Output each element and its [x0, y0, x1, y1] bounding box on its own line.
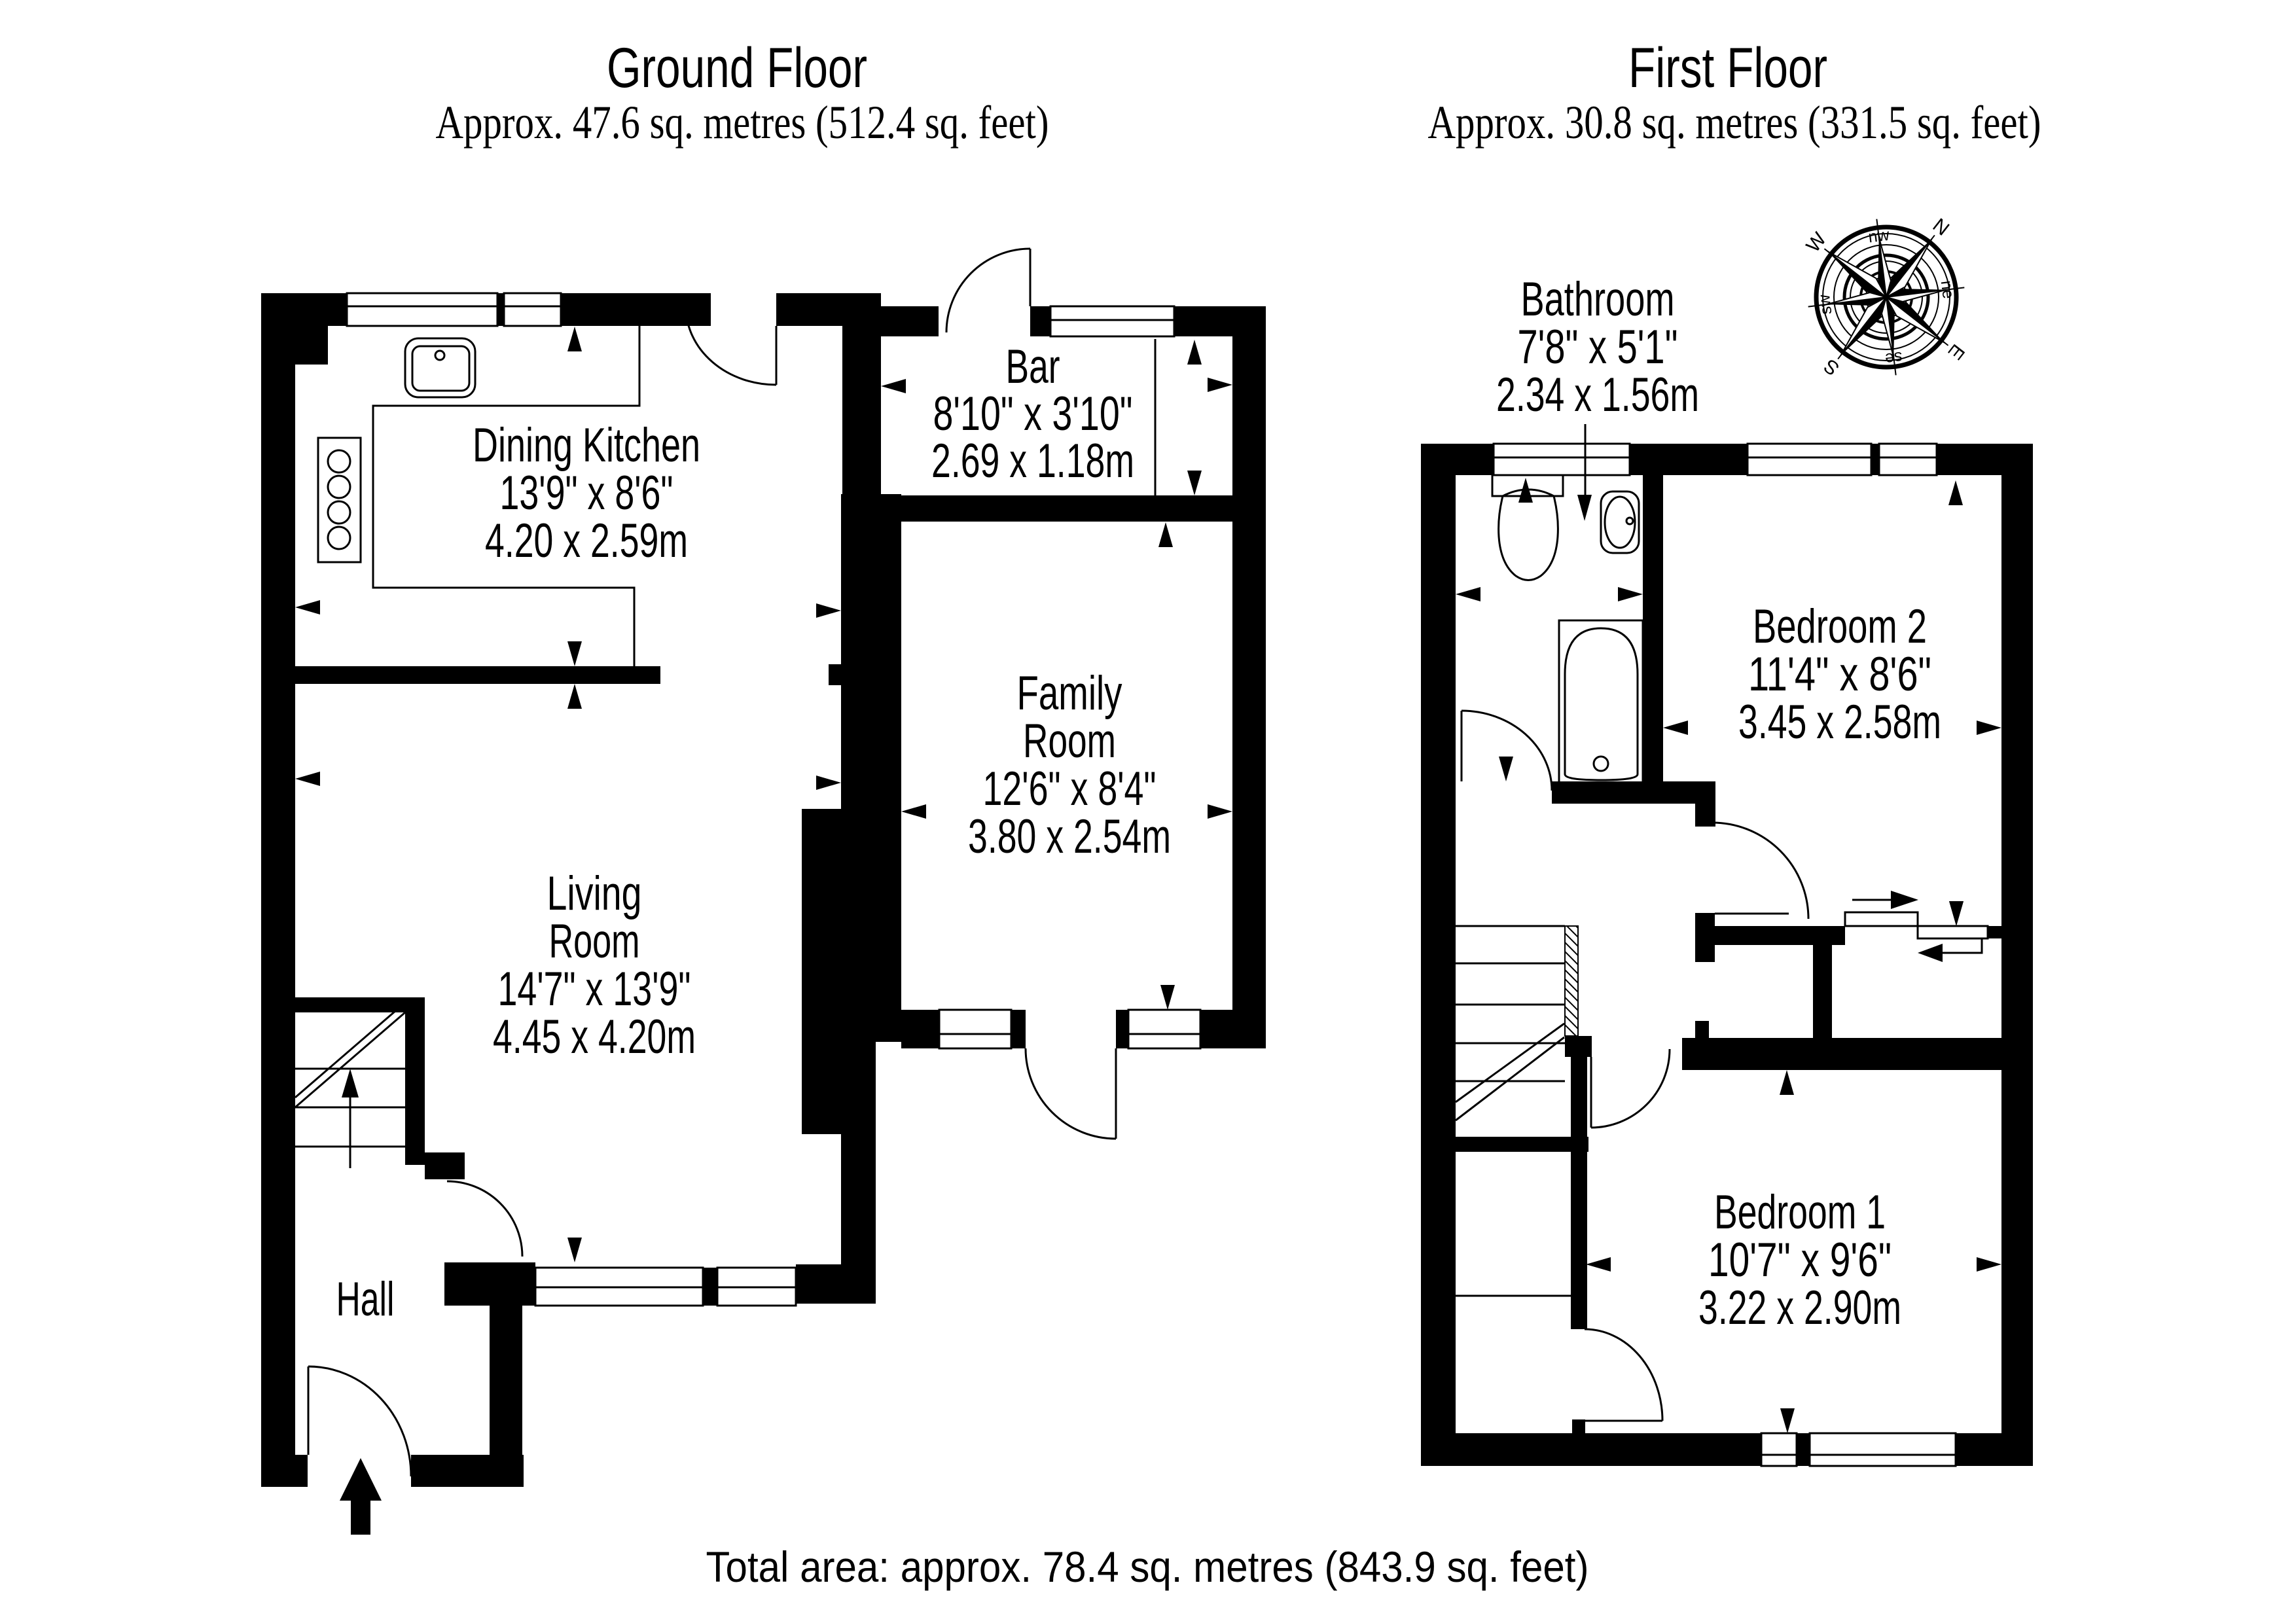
svg-text:Hall: Hall [336, 1273, 395, 1326]
svg-text:Room: Room [549, 915, 640, 968]
svg-text:12'6" x 8'4": 12'6" x 8'4" [983, 762, 1157, 815]
svg-text:13'9" x 8'6": 13'9" x 8'6" [500, 467, 673, 520]
svg-text:Approx. 30.8 sq. metres (331.5: Approx. 30.8 sq. metres (331.5 sq. feet) [1428, 96, 2041, 149]
svg-text:4.45 x 4.20m: 4.45 x 4.20m [493, 1010, 696, 1063]
svg-text:7'8" x 5'1": 7'8" x 5'1" [1518, 321, 1678, 374]
svg-text:2.69 x 1.18m: 2.69 x 1.18m [931, 435, 1134, 488]
svg-text:3.80 x 2.54m: 3.80 x 2.54m [968, 810, 1171, 863]
svg-text:14'7" x 13'9": 14'7" x 13'9" [498, 963, 691, 1016]
svg-text:8'10" x 3'10": 8'10" x 3'10" [933, 387, 1133, 440]
svg-text:ne: ne [1937, 279, 1958, 300]
svg-text:nw: nw [1867, 226, 1891, 247]
svg-text:Bathroom: Bathroom [1521, 273, 1675, 326]
svg-text:Bar: Bar [1006, 340, 1060, 393]
svg-text:Room: Room [1023, 715, 1116, 768]
svg-text:First Floor: First Floor [1628, 37, 1827, 99]
svg-text:Dining Kitchen: Dining Kitchen [473, 419, 700, 472]
svg-text:Family: Family [1017, 667, 1122, 720]
svg-text:sw: sw [1815, 293, 1836, 316]
svg-text:Living: Living [547, 867, 642, 920]
svg-text:Total area: approx. 78.4 sq. m: Total area: approx. 78.4 sq. metres (843… [706, 1543, 1589, 1591]
svg-text:3.22 x 2.90m: 3.22 x 2.90m [1698, 1281, 1901, 1334]
svg-text:Bedroom 1: Bedroom 1 [1714, 1186, 1886, 1239]
svg-text:3.45 x 2.58m: 3.45 x 2.58m [1738, 696, 1941, 749]
svg-text:Ground Floor: Ground Floor [607, 37, 867, 99]
svg-text:se: se [1884, 348, 1904, 368]
svg-text:4.20 x 2.59m: 4.20 x 2.59m [485, 514, 688, 567]
svg-text:10'7" x 9'6": 10'7" x 9'6" [1708, 1234, 1892, 1287]
svg-text:2.34 x 1.56m: 2.34 x 1.56m [1496, 368, 1699, 421]
svg-text:Bedroom 2: Bedroom 2 [1753, 600, 1927, 653]
svg-text:11'4" x 8'6": 11'4" x 8'6" [1748, 648, 1931, 701]
svg-text:Approx. 47.6 sq. metres (512.4: Approx. 47.6 sq. metres (512.4 sq. feet) [436, 96, 1049, 149]
